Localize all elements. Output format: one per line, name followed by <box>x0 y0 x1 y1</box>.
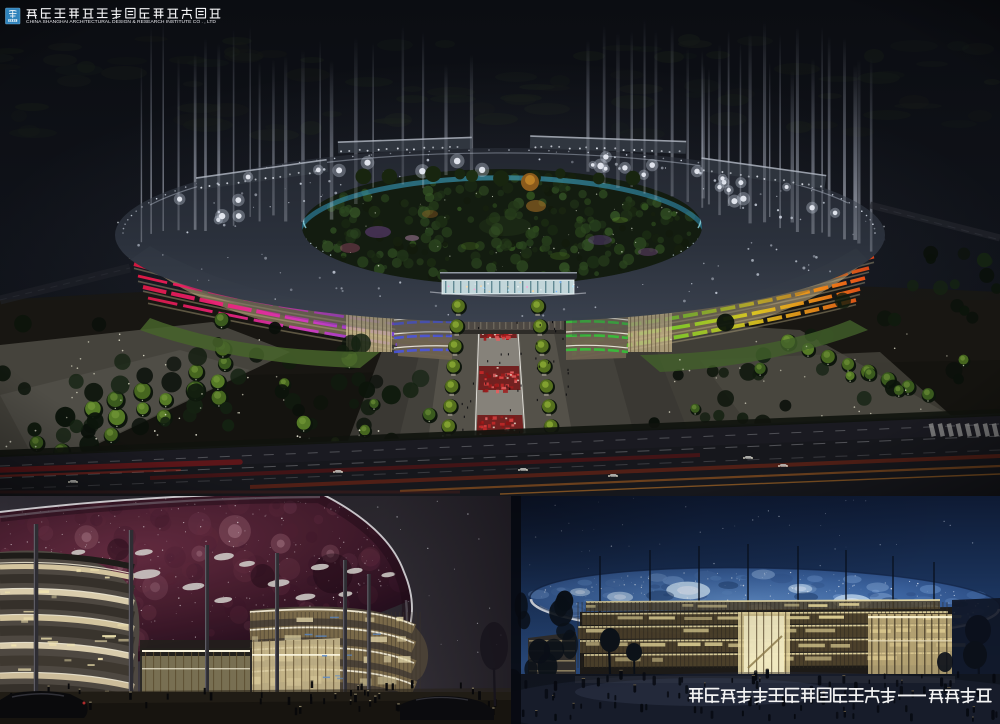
svg-text:CHINA SHANGHAI ARCHITECTURAL D: CHINA SHANGHAI ARCHITECTURAL DESIGN & RE… <box>26 19 216 25</box>
